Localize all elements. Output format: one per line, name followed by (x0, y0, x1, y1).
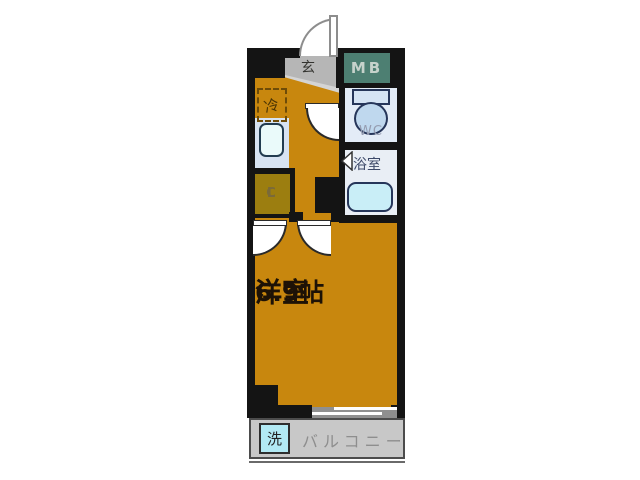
wc-label: WC (345, 124, 397, 139)
kitchen-sink (259, 123, 284, 157)
sliding-window-pane-lower (312, 412, 382, 415)
wall-bottom-left (247, 405, 312, 418)
wall-wc-bath-divider (339, 142, 405, 150)
closet-label-line2: L (267, 187, 275, 201)
balcony-label: バルコニー (302, 428, 407, 452)
main-room-size: 6.9帖 (255, 278, 324, 307)
wall-bath-room-divider (339, 215, 405, 223)
closet-area: C L (252, 174, 290, 214)
genkan-label: 玄 (283, 57, 333, 77)
bathtub-icon (347, 182, 393, 212)
refrigerator-space: 冷 (257, 88, 287, 122)
refrigerator-label: 冷 (262, 93, 282, 117)
wall-pipe-space (315, 177, 345, 213)
sliding-window-pane-upper (334, 407, 397, 410)
meter-box: MB (344, 53, 390, 83)
wall-right (397, 48, 405, 418)
floorplan-canvas: 冷 C L WC 浴室 玄 MB 洋室 6.9帖 (0, 0, 640, 480)
wall-room-top-stub-right (331, 212, 345, 222)
washer-space: 洗 (261, 425, 288, 452)
entrance-door-leaf-icon (329, 15, 338, 57)
washer-label: 洗 (267, 428, 282, 449)
bath-door-icon (341, 151, 354, 171)
balcony-outer-edge (249, 461, 405, 463)
closet-door-leaf-icon (253, 220, 287, 226)
bathroom-label: 浴室 (353, 154, 381, 174)
room-door-leaf-icon (297, 220, 331, 226)
